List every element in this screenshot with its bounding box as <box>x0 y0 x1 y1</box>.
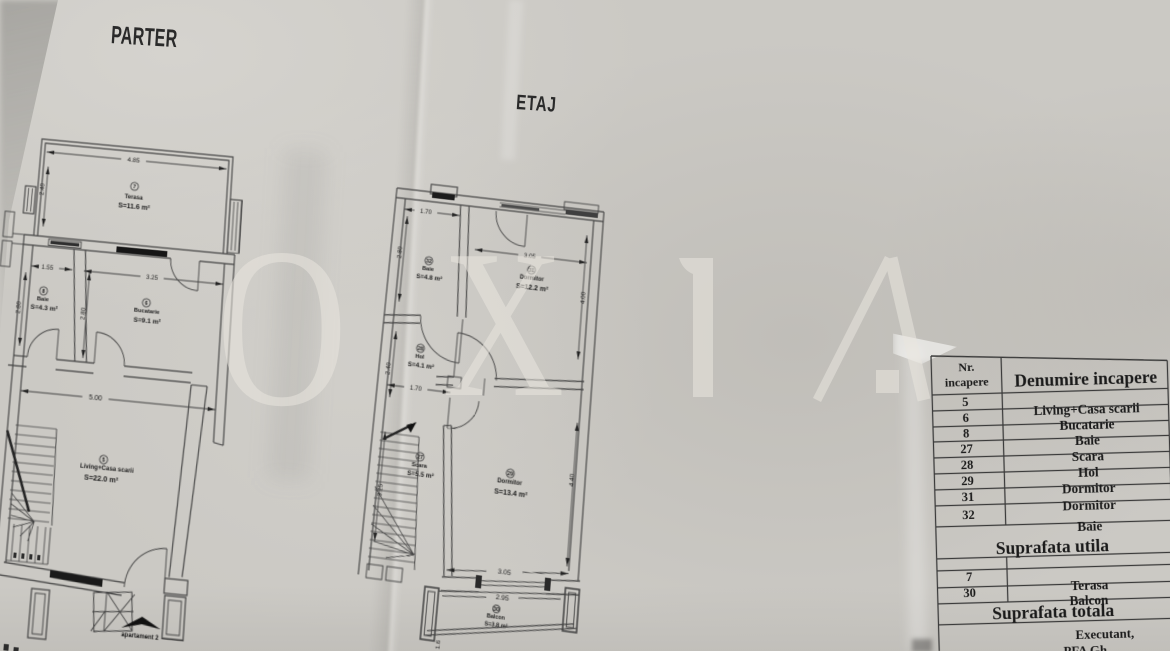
svg-text:O: O <box>216 201 348 454</box>
svg-text:X: X <box>442 206 564 441</box>
